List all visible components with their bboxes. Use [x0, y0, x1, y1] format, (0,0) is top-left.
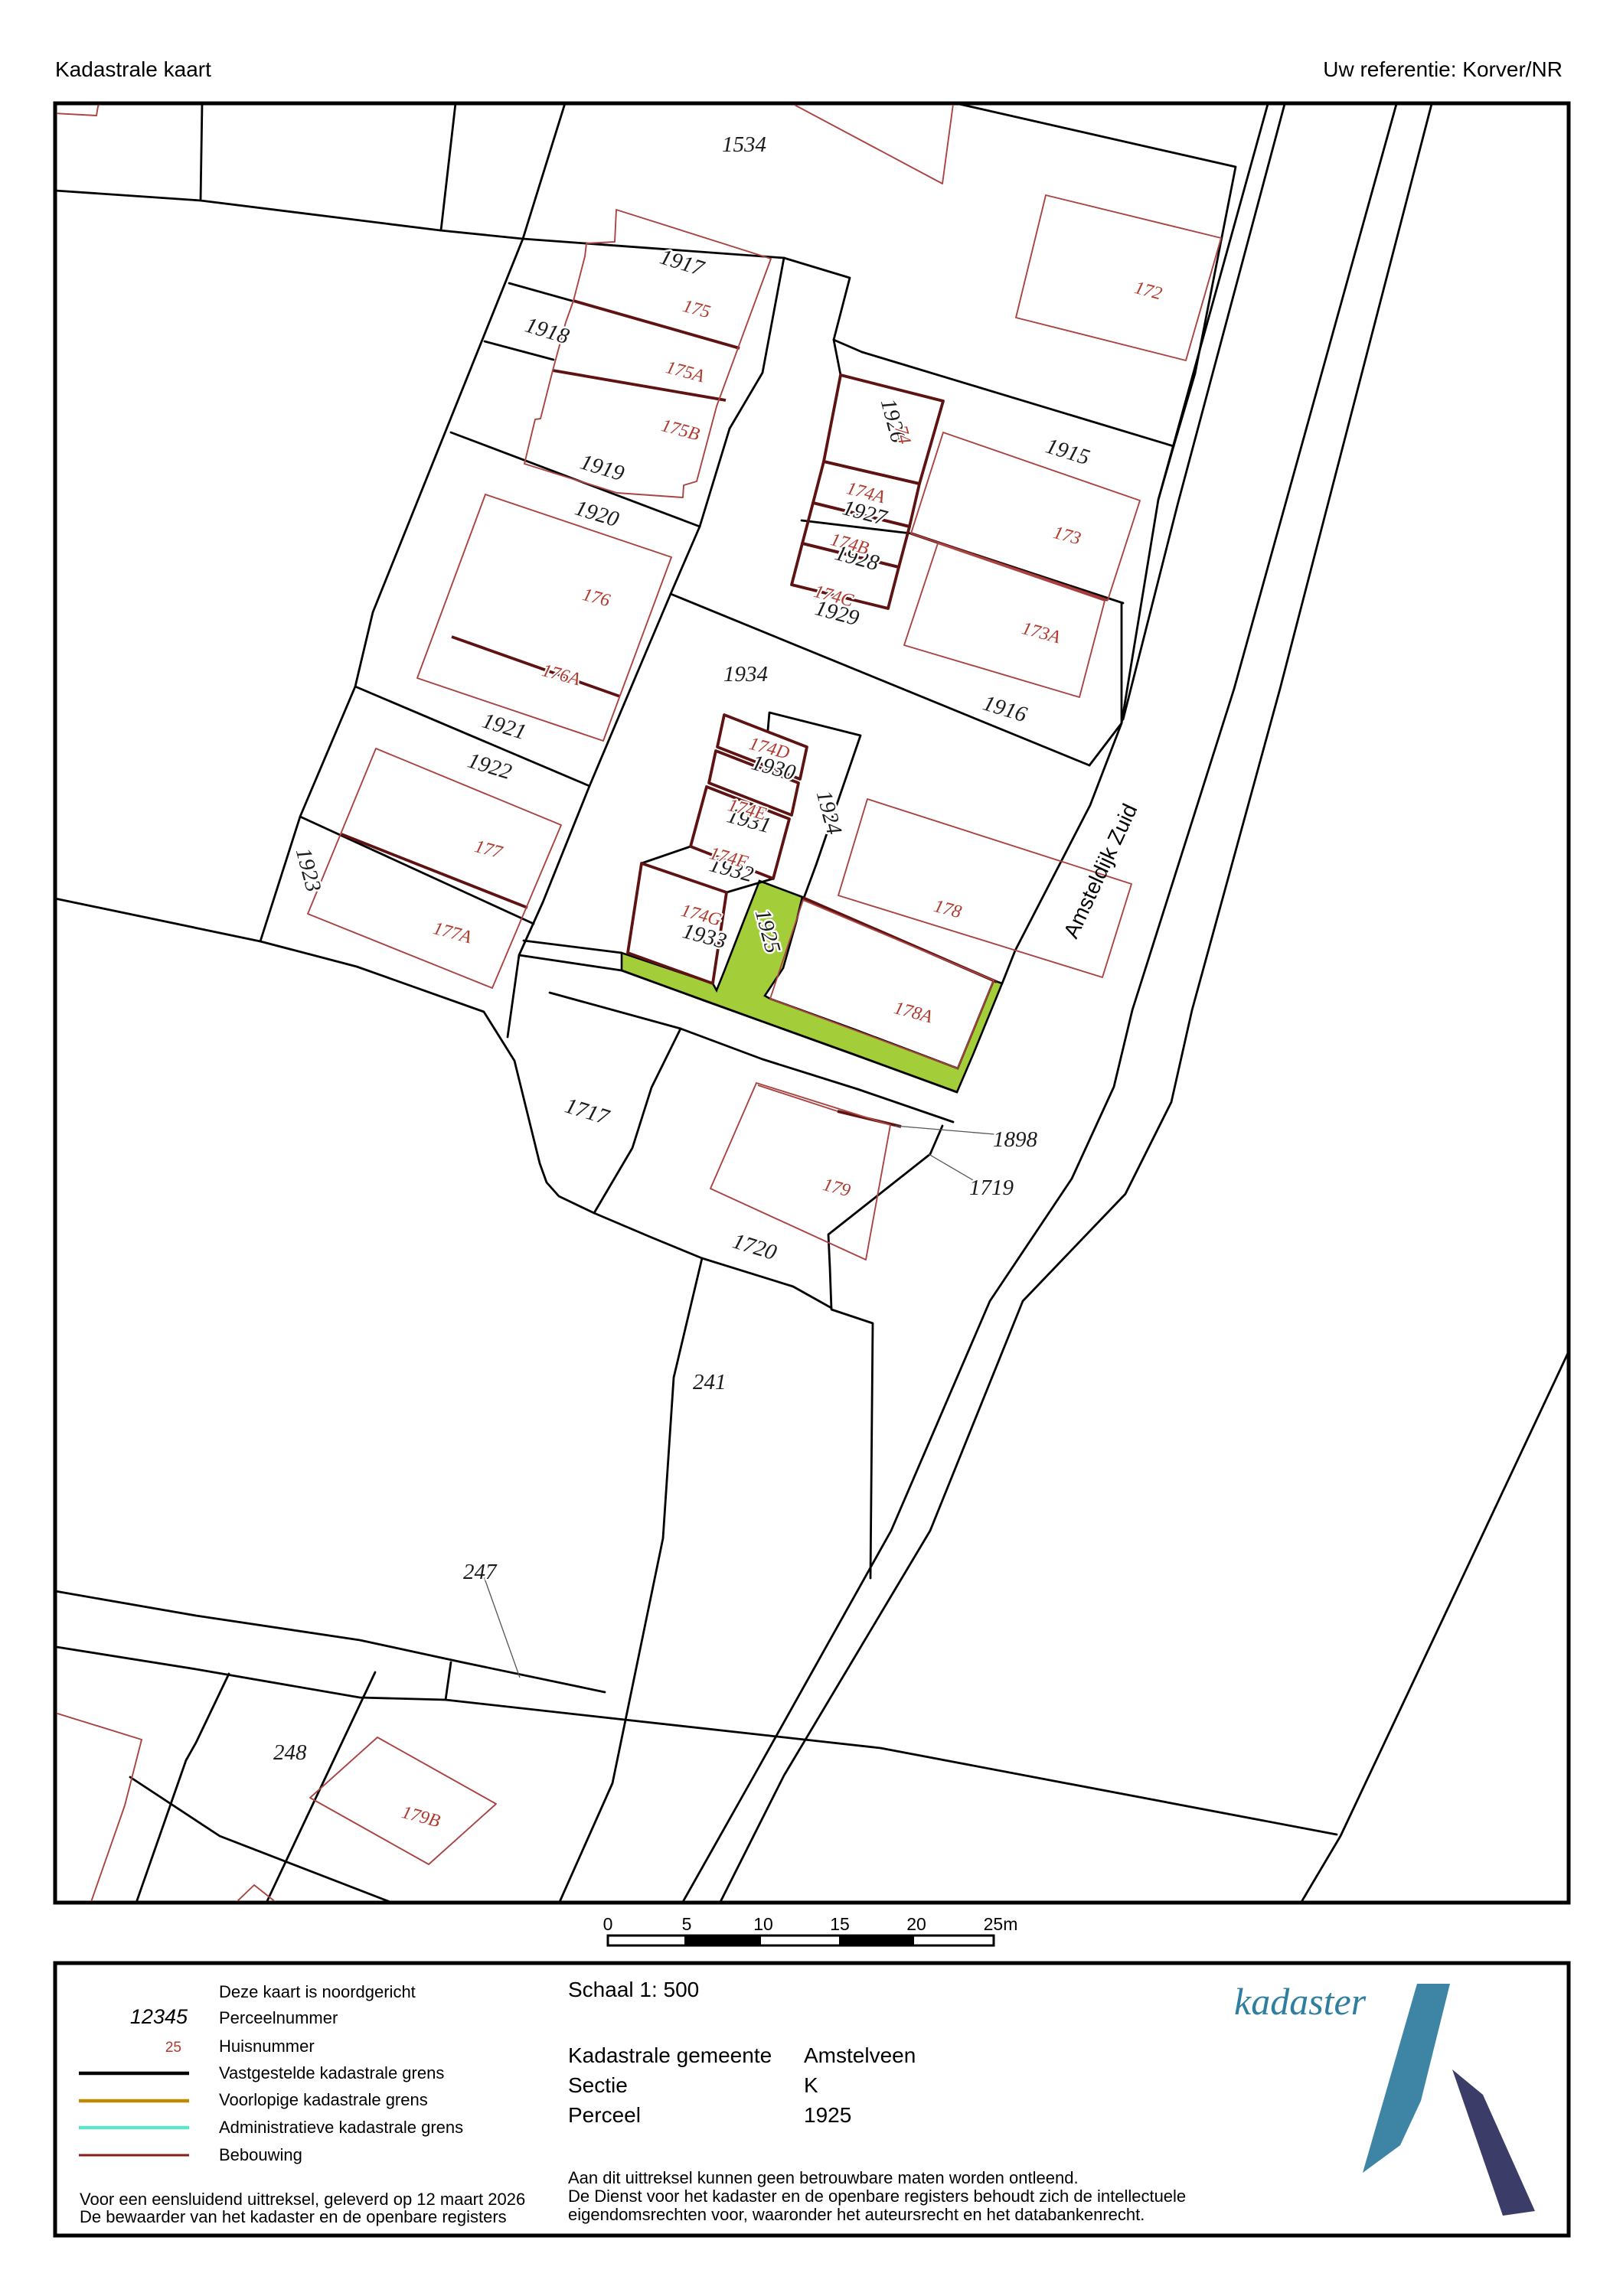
svg-text:175: 175 [681, 296, 713, 322]
svg-text:De bewaarder van het kadaster: De bewaarder van het kadaster en de open… [80, 2207, 507, 2226]
svg-text:241: 241 [693, 1370, 727, 1394]
svg-text:eigendomsrechten voor, waarond: eigendomsrechten voor, waaronder het aut… [568, 2205, 1145, 2224]
svg-text:20: 20 [906, 1914, 926, 1934]
svg-text:Schaal 1: 500: Schaal 1: 500 [568, 1978, 699, 2001]
svg-text:De Dienst voor het kadaster en: De Dienst voor het kadaster en de openba… [568, 2187, 1186, 2206]
svg-text:1924: 1924 [811, 788, 847, 837]
svg-text:Voor een eensluidend uittrekse: Voor een eensluidend uittreksel, gelever… [80, 2190, 525, 2209]
svg-text:Perceelnummer: Perceelnummer [219, 2008, 338, 2027]
svg-text:Bebouwing: Bebouwing [219, 2145, 302, 2164]
svg-text:175A: 175A [664, 357, 707, 386]
svg-text:Kadastrale gemeente: Kadastrale gemeente [568, 2043, 772, 2067]
svg-text:Huisnummer: Huisnummer [219, 2037, 315, 2056]
svg-text:176: 176 [580, 585, 612, 611]
svg-text:1918: 1918 [522, 313, 572, 350]
svg-text:1534: 1534 [722, 132, 766, 157]
svg-text:1934: 1934 [723, 662, 768, 687]
svg-text:1720: 1720 [730, 1229, 779, 1266]
svg-text:Administratieve kadastrale gre: Administratieve kadastrale grens [219, 2118, 463, 2137]
svg-text:247: 247 [463, 1560, 498, 1584]
svg-text:172: 172 [1132, 278, 1164, 304]
svg-text:kadaster: kadaster [1234, 1980, 1367, 2023]
svg-text:Kadastrale kaart: Kadastrale kaart [55, 57, 211, 81]
svg-text:Vastgestelde kadastrale grens: Vastgestelde kadastrale grens [219, 2063, 444, 2082]
svg-text:Sectie: Sectie [568, 2073, 628, 2097]
svg-text:15: 15 [830, 1914, 850, 1934]
svg-text:177: 177 [472, 837, 505, 863]
svg-text:1923: 1923 [291, 846, 326, 895]
svg-text:1915: 1915 [1043, 434, 1092, 471]
svg-text:1922: 1922 [465, 748, 514, 785]
svg-text:10: 10 [753, 1914, 773, 1934]
svg-text:173A: 173A [1020, 618, 1063, 647]
svg-text:1719: 1719 [969, 1176, 1014, 1200]
svg-text:Aan dit uittreksel kunnen geen: Aan dit uittreksel kunnen geen betrouwba… [568, 2168, 1079, 2187]
svg-text:179: 179 [821, 1175, 853, 1201]
svg-text:Perceel: Perceel [568, 2103, 641, 2127]
svg-text:25: 25 [165, 2040, 181, 2056]
svg-text:179B: 179B [400, 1802, 442, 1831]
svg-text:25m: 25m [984, 1914, 1018, 1934]
svg-text:0: 0 [603, 1914, 613, 1934]
svg-text:Amsteldijk Zuid: Amsteldijk Zuid [1059, 800, 1141, 941]
svg-text:Amstelveen: Amstelveen [804, 2043, 916, 2067]
svg-text:178A: 178A [892, 998, 935, 1027]
svg-text:248: 248 [273, 1740, 307, 1765]
svg-text:176A: 176A [540, 660, 583, 690]
svg-text:12345: 12345 [130, 2005, 188, 2028]
svg-text:Uw referentie: Korver/NR: Uw referentie: Korver/NR [1323, 57, 1563, 81]
svg-text:173: 173 [1051, 523, 1083, 549]
svg-text:177A: 177A [431, 918, 474, 947]
svg-text:1925: 1925 [804, 2103, 851, 2127]
svg-text:175B: 175B [659, 416, 702, 445]
svg-text:Deze kaart is noordgericht: Deze kaart is noordgericht [219, 1982, 416, 2001]
svg-text:1916: 1916 [980, 691, 1030, 728]
svg-text:5: 5 [682, 1914, 692, 1934]
svg-text:Voorlopige kadastrale grens: Voorlopige kadastrale grens [219, 2090, 428, 2109]
svg-text:1919: 1919 [577, 450, 627, 487]
svg-text:1898: 1898 [993, 1127, 1038, 1152]
svg-text:1717: 1717 [562, 1094, 612, 1130]
svg-text:1917: 1917 [657, 245, 707, 282]
svg-text:K: K [804, 2073, 818, 2097]
svg-text:178: 178 [932, 896, 964, 922]
